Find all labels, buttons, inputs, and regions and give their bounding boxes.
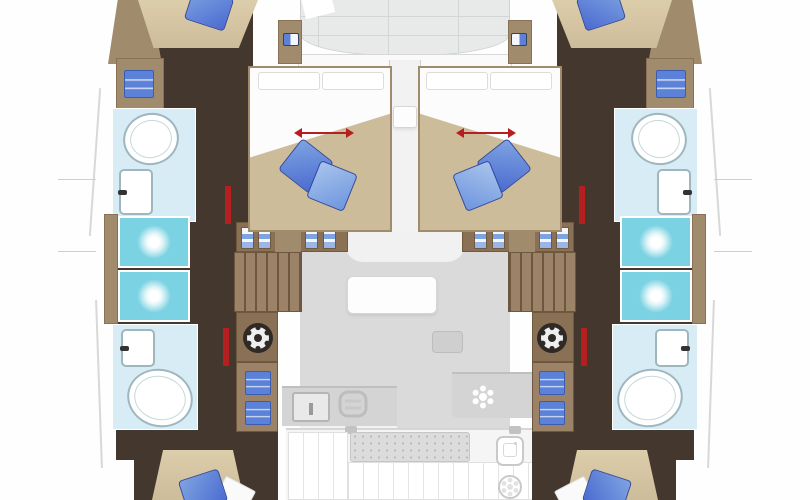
bed-pillow xyxy=(490,72,552,90)
drawer-unit xyxy=(532,362,574,432)
forward-bathroom xyxy=(614,108,698,222)
ship-wheel-icon xyxy=(536,322,568,354)
catamaran-floorplan xyxy=(0,0,810,500)
shower-head-icon xyxy=(636,222,676,262)
slide-arrow-icon xyxy=(464,132,508,134)
lifeline xyxy=(714,179,752,180)
cabin-door-marker xyxy=(579,186,585,224)
hull-outline xyxy=(707,300,715,468)
hull-outline xyxy=(709,88,721,236)
stored-linen xyxy=(656,70,686,98)
shower-stall-forward xyxy=(620,216,692,268)
bed-pillow xyxy=(426,72,488,90)
toilet xyxy=(625,107,693,172)
toilet xyxy=(611,362,689,434)
aft-bathroom xyxy=(612,324,698,430)
cabin-door-marker xyxy=(581,328,587,366)
shower-stall-aft xyxy=(620,270,692,322)
shower-cabinet xyxy=(692,214,706,324)
starboard-side xyxy=(0,0,810,500)
porthole-icon xyxy=(511,33,527,46)
stored-linen xyxy=(539,401,565,425)
companionway-stairs xyxy=(508,252,576,312)
lifeline xyxy=(714,251,752,252)
forward-cabin xyxy=(418,66,562,232)
washbasin xyxy=(657,169,691,215)
washbasin xyxy=(655,329,689,367)
bow-locker xyxy=(508,20,532,64)
shower-head-icon xyxy=(636,276,676,316)
stored-linen xyxy=(539,371,565,395)
utility-box xyxy=(532,312,574,362)
